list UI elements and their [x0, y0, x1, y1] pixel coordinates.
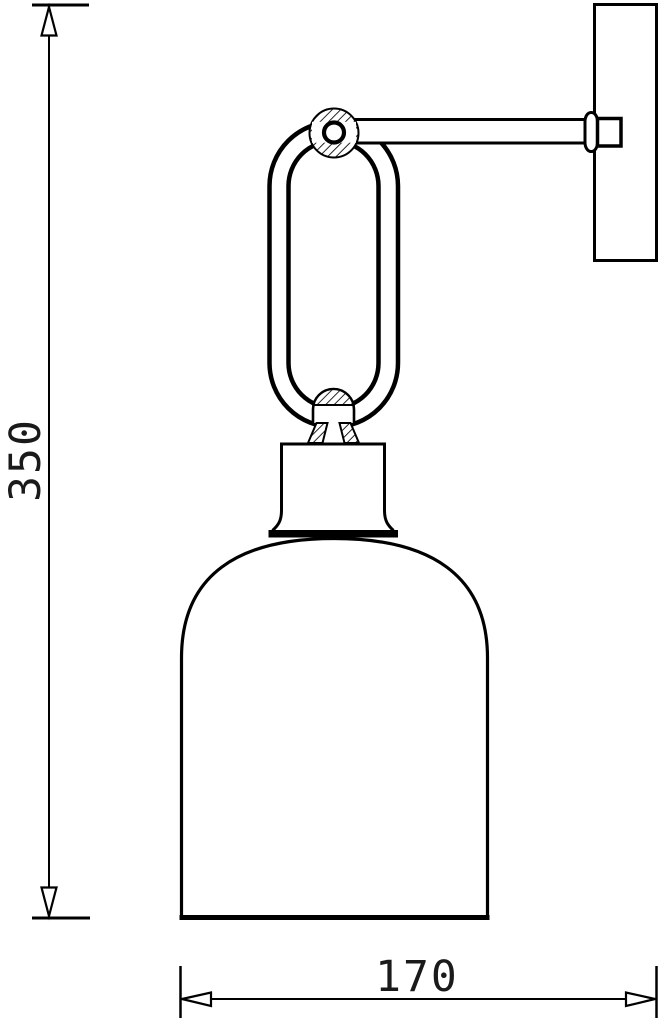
mounting-arm — [350, 120, 589, 144]
technical-drawing-canvas: 350 — [0, 0, 664, 1024]
wall-lamp — [180, 5, 657, 918]
height-arrow-down-icon — [42, 888, 57, 917]
height-dimension-label: 350 — [1, 418, 51, 502]
bottom-knob — [308, 389, 359, 444]
depth-dimension-label: 170 — [375, 952, 459, 1002]
wall-mount-block — [598, 119, 622, 147]
depth-dimension: 170 — [181, 952, 657, 1018]
wall-lamp-dimension-drawing: 350 — [0, 0, 664, 1024]
height-dimension: 350 — [1, 5, 90, 918]
depth-arrow-left-icon — [182, 993, 211, 1007]
socket-rim-plate — [269, 530, 399, 538]
top-pivot — [310, 109, 359, 158]
lamp-shade — [182, 539, 488, 918]
height-arrow-up-icon — [42, 7, 57, 36]
socket-cup — [273, 444, 394, 531]
arm-flange — [585, 113, 598, 152]
pivot-pin-hole — [324, 123, 344, 143]
depth-arrow-right-icon — [626, 993, 655, 1007]
